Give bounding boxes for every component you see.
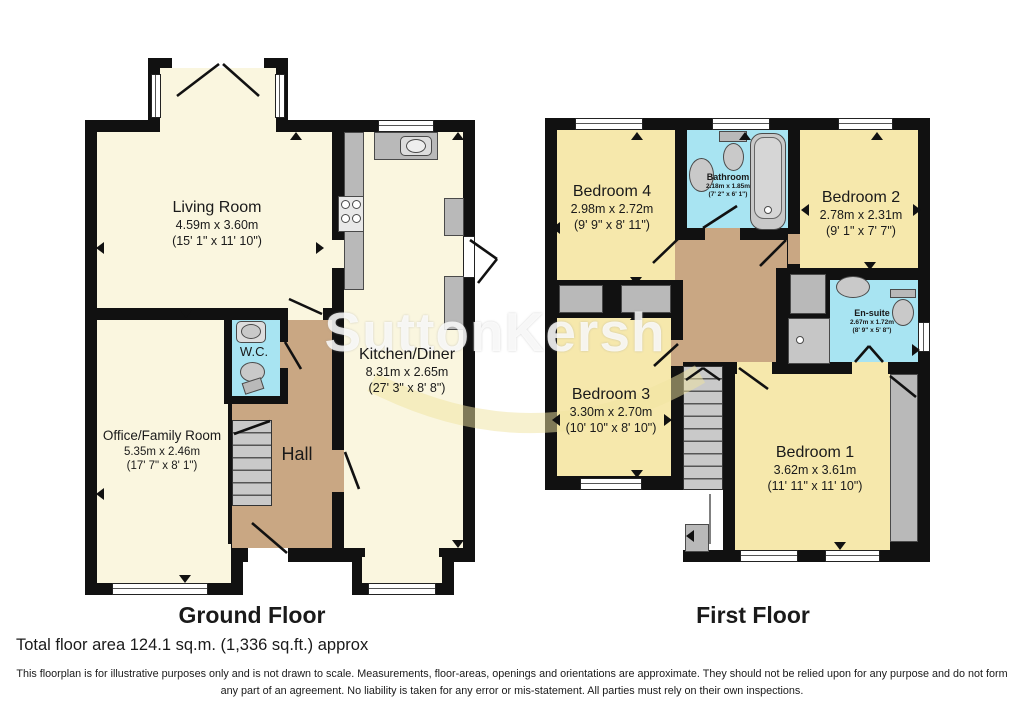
arrow: [871, 132, 883, 140]
opening-bed3-door: [671, 340, 683, 366]
wall-bed1-left: [723, 362, 735, 562]
arrow: [552, 414, 560, 426]
wall-ensuite-left: [776, 268, 788, 374]
room-name: Bedroom 2: [820, 188, 903, 208]
total-floor-area: Total floor area 124.1 sq.m. (1,336 sq.f…: [16, 636, 368, 655]
opening-bay-doors: [172, 58, 264, 68]
arrow: [552, 222, 560, 234]
room-label-kitchen-diner: Kitchen/Diner 8.31m x 2.65m (27' 3" x 8'…: [359, 345, 455, 396]
arrow: [316, 242, 324, 254]
room-label-hall: Hall: [281, 443, 312, 466]
room-name: En-suite: [850, 308, 894, 319]
ground-floor-title: Ground Floor: [179, 602, 326, 629]
arrow: [686, 530, 694, 542]
room-label-bedroom-4: Bedroom 4 2.98m x 2.72m (9' 9" x 8' 11"): [571, 182, 654, 233]
arrow: [179, 575, 191, 583]
bath-drain: [764, 206, 772, 214]
ensuite-shower: [788, 318, 830, 364]
room-kitchen-bay: [362, 557, 442, 583]
arrow: [834, 542, 846, 550]
arrow: [96, 242, 104, 254]
room-imperial: (7' 2" x 6' 1"): [706, 191, 750, 199]
ensuite-toilet: [892, 299, 914, 326]
room-imperial: (10' 10" x 8' 10"): [566, 421, 657, 437]
window-office-bottom: [112, 583, 208, 595]
room-label-bathroom: Bathroom 2.18m x 1.85m (7' 2" x 6' 1"): [706, 172, 750, 200]
room-imperial: (11' 11" x 11' 10"): [768, 479, 863, 495]
wc-basin-bowl: [241, 324, 261, 339]
hob-ring: [352, 214, 361, 223]
room-name: Kitchen/Diner: [359, 345, 455, 365]
room-name: Bathroom: [706, 172, 750, 183]
wall-bathroom-bed2-a: [788, 118, 800, 234]
window-bay-left: [151, 74, 161, 118]
room-metric: 2.18m x 1.85m: [706, 183, 750, 191]
window-bed4-top: [575, 118, 643, 130]
opening-living-door: [285, 308, 323, 320]
bed1-wardrobe: [890, 374, 918, 542]
room-imperial: (8' 9" x 5' 8"): [850, 327, 894, 335]
first-floor-title: First Floor: [696, 602, 810, 629]
room-imperial: (9' 9" x 8' 11"): [571, 218, 654, 234]
wall-bed4-bathroom: [675, 118, 687, 234]
arrow: [631, 470, 643, 478]
hob-ring: [341, 214, 350, 223]
wall-bathroom-bottom-a: [675, 228, 705, 240]
room-metric: 3.62m x 3.61m: [768, 463, 863, 479]
ensuite-closet: [790, 274, 826, 314]
bathroom-toilet: [723, 143, 744, 171]
opening-kitchen-bay: [365, 548, 439, 560]
arrow: [913, 204, 921, 216]
room-landing: [675, 230, 787, 362]
wall-wc-bottom: [224, 396, 288, 404]
room-metric: 2.98m x 2.72m: [571, 202, 654, 218]
room-name: Bedroom 4: [571, 182, 654, 202]
wall-wc-left: [224, 308, 232, 404]
arrow: [801, 204, 809, 216]
opening-wc-door: [280, 342, 288, 368]
arrow: [630, 277, 642, 285]
arrow: [452, 132, 464, 140]
room-imperial: (15' 1" x 11' 10"): [172, 234, 262, 250]
window-bed2-top: [838, 118, 893, 130]
kitchen-sink-bowl: [406, 139, 426, 153]
opening-hall-kitchen: [332, 450, 344, 492]
exterior-notch: [545, 490, 683, 562]
ensuite-basin: [836, 276, 870, 298]
arrow: [864, 262, 876, 270]
room-metric: 3.30m x 2.70m: [566, 405, 657, 421]
room-metric: 2.78m x 2.31m: [820, 208, 903, 224]
room-name: Living Room: [172, 198, 262, 218]
hob-ring: [352, 200, 361, 209]
wall-bed3-landing-b: [671, 366, 683, 490]
arrow: [664, 414, 672, 426]
hob-ring: [341, 200, 350, 209]
disclaimer-text: This floorplan is for illustrative purpo…: [7, 666, 1017, 699]
opening-front-door: [248, 548, 288, 562]
arrow: [96, 488, 104, 500]
room-name: W.C.: [240, 344, 268, 360]
room-imperial: (27' 3" x 8' 8"): [359, 381, 455, 397]
room-imperial: (17' 7" x 8' 1"): [103, 459, 221, 473]
arrow: [912, 344, 920, 356]
window-bed3-bottom: [580, 478, 642, 490]
window-bed1-bottom-a: [740, 550, 798, 562]
floorplan-page: SuttonKersh Living Room 4.59m x 3.60m (1…: [0, 0, 1024, 717]
arrow: [180, 310, 192, 318]
opening-serving: [332, 240, 344, 268]
arrow: [739, 132, 751, 140]
shower-drain: [796, 336, 804, 344]
arrow: [631, 132, 643, 140]
window-kitchen-bay: [368, 583, 436, 595]
arrow: [290, 132, 302, 140]
wall-wc-right-b: [280, 368, 288, 404]
room-name: Bedroom 3: [566, 385, 657, 405]
room-bay: [160, 68, 276, 132]
opening-bathroom-door: [705, 228, 740, 242]
room-office-ext: [97, 544, 231, 583]
room-name: Hall: [281, 443, 312, 466]
opening-bed2-door: [788, 234, 800, 264]
room-metric: 4.59m x 3.60m: [172, 218, 262, 234]
window-kitchen-side-door: [463, 236, 475, 278]
opening-ensuite-door: [852, 362, 888, 374]
wall-bed3-landing-a: [671, 318, 683, 340]
room-metric: 8.31m x 2.65m: [359, 365, 455, 381]
room-label-bedroom-2: Bedroom 2 2.78m x 2.31m (9' 1" x 7' 7"): [820, 188, 903, 239]
window-kitchen-top: [378, 120, 434, 132]
window-bathroom-top: [712, 118, 770, 130]
room-imperial: (9' 1" x 7' 7"): [820, 224, 903, 240]
room-name: Bedroom 1: [768, 443, 863, 463]
room-label-living-room: Living Room 4.59m x 3.60m (15' 1" x 11' …: [172, 198, 262, 249]
room-label-bedroom-3: Bedroom 3 3.30m x 2.70m (10' 10" x 8' 10…: [566, 385, 657, 436]
room-label-office: Office/Family Room 5.35m x 2.46m (17' 7"…: [103, 428, 221, 474]
kitchen-unit-right-a: [444, 198, 464, 236]
arrow: [452, 540, 464, 548]
room-label-wc: W.C.: [240, 344, 268, 360]
room-label-ensuite: En-suite 2.67m x 1.72m (8' 9" x 5' 8"): [850, 308, 894, 336]
window-bay-right: [275, 74, 285, 118]
opening-bed1-door: [737, 362, 772, 374]
window-bed1-bottom-b: [825, 550, 880, 562]
stairs-ground: [232, 420, 272, 506]
room-metric: 5.35m x 2.46m: [103, 445, 221, 459]
room-name: Office/Family Room: [103, 428, 221, 445]
ensuite-cistern: [890, 289, 916, 298]
stairs-first: [683, 366, 723, 490]
room-metric: 2.67m x 1.72m: [850, 319, 894, 327]
wall-wc-right-a: [280, 308, 288, 342]
room-label-bedroom-1: Bedroom 1 3.62m x 3.61m (11' 11" x 11' 1…: [768, 443, 863, 494]
